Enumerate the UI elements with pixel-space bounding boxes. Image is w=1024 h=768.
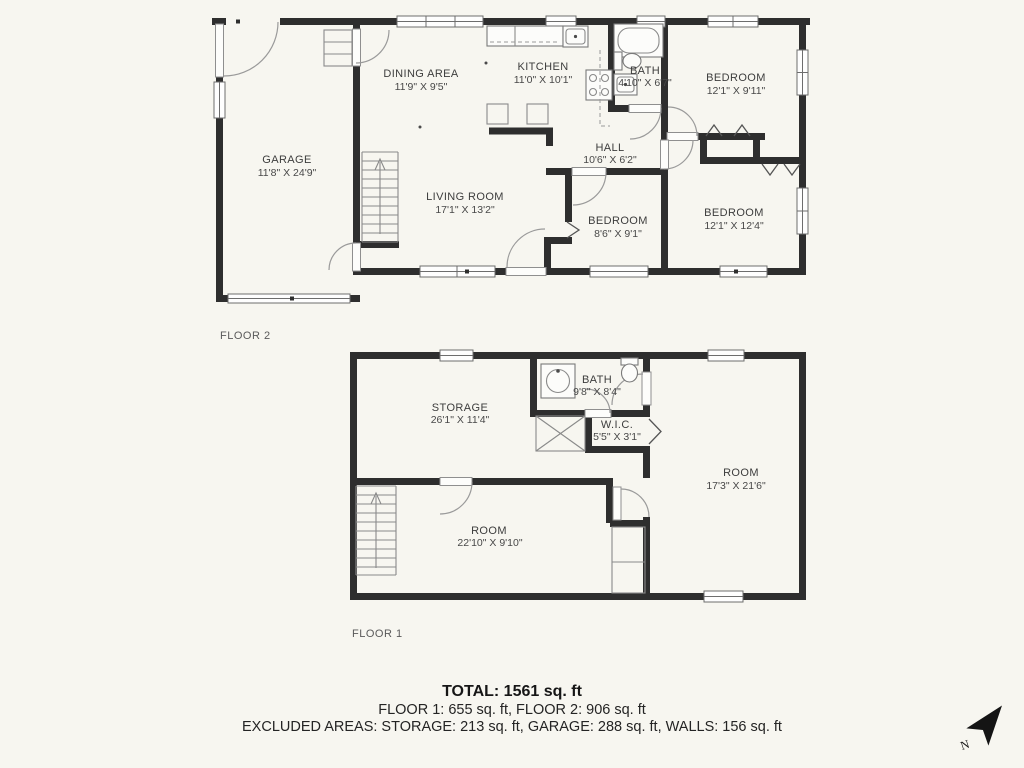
floor1-plan: STORAGE 26'1" X 11'4" BATH 9'8" X 8'4" W…: [350, 350, 806, 640]
room-dims-storage: 26'1" X 11'4": [431, 414, 490, 426]
room-dims-kitchen: 11'0" X 10'1": [514, 74, 573, 86]
area-summary: TOTAL: 1561 sq. ft FLOOR 1: 655 sq. ft, …: [242, 683, 782, 735]
room-label-garage: GARAGE: [262, 154, 311, 166]
room-dims-bedroom-right: 12'1" X 12'4": [704, 220, 764, 232]
room-dims-bath2: 4'10" X 6'7": [618, 77, 672, 89]
room-dims-bedroom-small: 8'6" X 9'1": [594, 228, 642, 240]
room-label-wic: W.I.C.: [601, 419, 633, 431]
floor2-label: FLOOR 2: [220, 330, 271, 342]
room-label-hall: HALL: [595, 142, 624, 154]
room-dims-hall: 10'6" X 6'2": [583, 154, 637, 166]
toilet-icon: [614, 52, 622, 70]
room-label-room-bottom: ROOM: [471, 525, 507, 537]
room-label-dining: DINING AREA: [383, 68, 459, 80]
floor2-plan: GARAGE 11'8" X 24'9" DINING AREA 11'9" X…: [212, 16, 810, 342]
summary-floors: FLOOR 1: 655 sq. ft, FLOOR 2: 906 sq. ft: [378, 702, 646, 718]
room-label-room-right: ROOM: [723, 467, 759, 479]
room-label-kitchen: KITCHEN: [517, 61, 568, 73]
compass: N: [959, 697, 1013, 753]
wic-bifold-door: [649, 419, 661, 444]
room-dims-living: 17'1" X 13'2": [435, 204, 495, 216]
floor1-stairs: [356, 486, 396, 575]
bar-stool: [487, 104, 508, 124]
room-dims-room-right: 17'3" X 21'6": [706, 480, 766, 492]
room-dims-bath1: 9'8" X 8'4": [573, 386, 621, 398]
summary-excluded: EXCLUDED AREAS: STORAGE: 213 sq. ft, GAR…: [242, 719, 782, 735]
room-label-bedroom-small: BEDROOM: [588, 215, 648, 227]
room-dims-bedroom-top: 12'1" X 9'11": [707, 85, 766, 97]
north-label: N: [959, 737, 972, 753]
stove-icon: [586, 70, 612, 100]
garage-landing-steps: [324, 30, 352, 66]
north-arrow-icon: [966, 697, 1013, 746]
floor2-labels: GARAGE 11'8" X 24'9" DINING AREA 11'9" X…: [258, 61, 766, 240]
floorplan-page: GARAGE 11'8" X 24'9" DINING AREA 11'9" X…: [0, 0, 1024, 768]
room-label-living: LIVING ROOM: [426, 191, 504, 203]
room-label-bedroom-top: BEDROOM: [706, 72, 766, 84]
room-label-bath2: BATH: [630, 65, 660, 77]
floorplan-canvas: GARAGE 11'8" X 24'9" DINING AREA 11'9" X…: [0, 0, 1024, 768]
room-dims-garage: 11'8" X 24'9": [258, 167, 317, 179]
entry-closet: [612, 527, 645, 593]
room-dims-wic: 5'5" X 3'1": [593, 431, 641, 443]
room-dims-dining: 11'9" X 9'5": [395, 81, 448, 93]
room-label-storage: STORAGE: [432, 402, 488, 414]
kitchen-counter: [487, 26, 563, 46]
floor1-label: FLOOR 1: [352, 628, 403, 640]
room-dims-room-bottom: 22'10" X 9'10": [457, 537, 522, 549]
room-label-bedroom-right: BEDROOM: [704, 207, 764, 219]
room-label-bath1: BATH: [582, 374, 612, 386]
summary-total: TOTAL: 1561 sq. ft: [442, 683, 583, 700]
bar-stool: [527, 104, 548, 124]
floor1-labels: STORAGE 26'1" X 11'4" BATH 9'8" X 8'4" W…: [431, 374, 766, 549]
